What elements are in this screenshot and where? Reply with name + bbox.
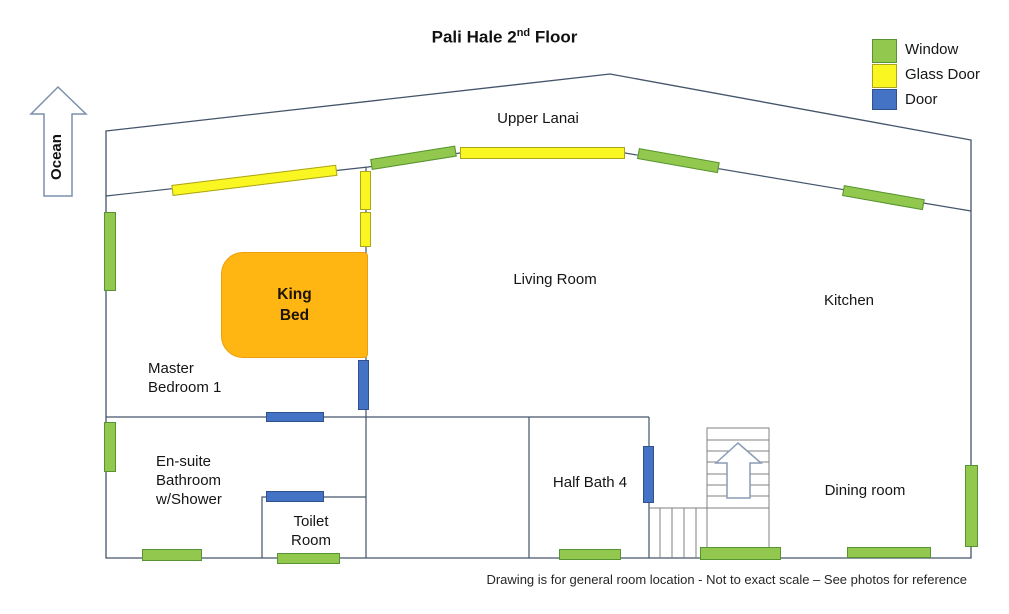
room-label-ensuite: En-suite Bathroom w/Shower xyxy=(156,452,222,510)
title-superscript: nd xyxy=(517,27,530,39)
room-label-dining-room: Dining room xyxy=(795,481,935,500)
window-halfbath-bottom xyxy=(559,549,621,560)
glass-door-living-lanai xyxy=(460,147,625,159)
door-master-bedroom xyxy=(358,360,369,410)
window-ensuite-left-wall xyxy=(104,422,116,472)
legend-glass-door-swatch xyxy=(872,64,897,88)
room-label-upper-lanai: Upper Lanai xyxy=(458,109,618,128)
disclaimer-text: Drawing is for general room location - N… xyxy=(486,572,967,587)
legend-door-swatch xyxy=(872,89,897,110)
ensuite-line3: w/Shower xyxy=(156,490,222,509)
window-stairs-bottom xyxy=(700,547,781,560)
window-dining-right-wall xyxy=(965,465,978,547)
ocean-label: Ocean xyxy=(48,117,68,197)
page-title: Pali Hale 2nd Floor xyxy=(0,27,1009,48)
title-text: Pali Hale 2 xyxy=(432,28,517,47)
ensuite-line1: En-suite xyxy=(156,452,222,471)
door-ensuite xyxy=(266,412,324,422)
room-label-master-bedroom: Master Bedroom 1 xyxy=(148,359,221,397)
title-suffix: Floor xyxy=(530,28,577,47)
window-toilet-bottom xyxy=(277,553,340,564)
room-label-kitchen: Kitchen xyxy=(779,291,919,310)
toilet-room-line1: Toilet xyxy=(261,512,361,531)
room-label-toilet-room: Toilet Room xyxy=(261,512,361,550)
legend-window-swatch xyxy=(872,39,897,63)
legend-window-label: Window xyxy=(905,41,958,58)
king-bed: King Bed xyxy=(221,252,368,358)
door-toilet-room xyxy=(266,491,324,502)
legend-door-label: Door xyxy=(905,91,938,108)
legend-glass-door-label: Glass Door xyxy=(905,66,980,83)
floor-plan-page: Pali Hale 2nd Floor Drawing is for gener… xyxy=(0,0,1009,614)
window-master-left-wall xyxy=(104,212,116,291)
master-bedroom-line1: Master xyxy=(148,359,221,378)
room-label-living-room: Living Room xyxy=(475,270,635,289)
king-bed-label-line2: Bed xyxy=(280,305,309,326)
master-bedroom-line2: Bedroom 1 xyxy=(148,378,221,397)
ensuite-line2: Bathroom xyxy=(156,471,222,490)
room-label-half-bath: Half Bath 4 xyxy=(520,473,660,492)
glass-door-wall-lower xyxy=(360,212,371,247)
window-dining-bottom xyxy=(847,547,931,558)
staircase xyxy=(649,428,769,558)
glass-door-wall-upper xyxy=(360,171,371,210)
king-bed-label-line1: King xyxy=(277,284,311,305)
window-ensuite-bottom xyxy=(142,549,202,561)
toilet-room-line2: Room xyxy=(261,531,361,550)
